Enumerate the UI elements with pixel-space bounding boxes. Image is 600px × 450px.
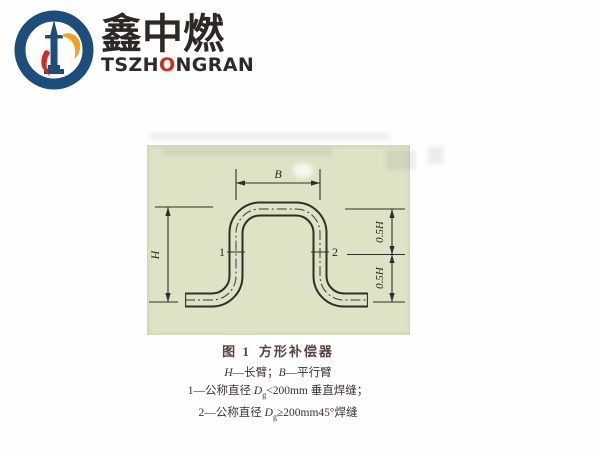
dim-label-b: B bbox=[274, 167, 282, 181]
company-name-cn: 鑫中燃 bbox=[101, 14, 254, 55]
compensator-diagram: 1 2 B H bbox=[147, 145, 410, 335]
company-name-en-post: NGRAN bbox=[176, 54, 255, 76]
note1-symbol-d: D bbox=[254, 385, 262, 397]
note1-desc: <200mm 垂直焊缝； bbox=[266, 385, 368, 397]
caption-note1-line: 1—公称直径 Dg<200mm 垂直焊缝； bbox=[95, 382, 461, 404]
scan-artifact bbox=[428, 147, 443, 164]
caption-arms-line: H—长臂；B—平行臂 bbox=[95, 364, 461, 382]
figure-scan-area: 1 2 B H bbox=[147, 145, 410, 335]
scan-artifact bbox=[150, 133, 390, 140]
company-name-en: TSZHONGRAN bbox=[101, 56, 254, 75]
caption-note2-line: 2—公称直径 Dg≥200mm45°焊缝 bbox=[95, 404, 461, 426]
figure-caption: 图 1方形补偿器 H—长臂；B—平行臂 1—公称直径 Dg<200mm 垂直焊缝… bbox=[95, 341, 461, 427]
dim-label-h: H bbox=[148, 249, 162, 260]
tower-base-icon bbox=[48, 65, 60, 69]
company-name-en-pre: TSZH bbox=[101, 54, 159, 76]
dimension-half-h: 0.5H 0.5H bbox=[345, 209, 405, 302]
arm-h-desc: —长臂； bbox=[233, 367, 279, 379]
symbol-h: H bbox=[224, 367, 232, 379]
dimension-b: B bbox=[236, 167, 320, 200]
figure-title-line: 图 1方形补偿器 bbox=[95, 341, 461, 360]
figure-title: 方形补偿器 bbox=[259, 344, 334, 359]
pipe-centerline bbox=[185, 209, 368, 300]
figure-number: 图 1 bbox=[222, 344, 251, 359]
note2-desc: ≥200mm45°焊缝 bbox=[277, 407, 358, 419]
pipe-body bbox=[185, 209, 368, 308]
company-name-en-o: O bbox=[159, 54, 176, 76]
note1-prefix: 1—公称直径 bbox=[188, 385, 254, 397]
dim-label-half-h-lower: 0.5H bbox=[374, 266, 386, 289]
company-logo: 鑫中燃 TSZHONGRAN bbox=[14, 10, 254, 90]
arm-b-desc: —平行臂 bbox=[286, 367, 332, 379]
weld-label-2: 2 bbox=[332, 245, 338, 259]
note2-symbol-d: D bbox=[265, 407, 273, 419]
dimension-h: H bbox=[148, 207, 213, 302]
tower-crossbar-icon bbox=[45, 35, 63, 39]
dim-label-half-h-upper: 0.5H bbox=[374, 220, 386, 243]
note2-prefix: 2—公称直径 bbox=[199, 407, 265, 419]
logo-text-block: 鑫中燃 TSZHONGRAN bbox=[101, 14, 254, 75]
weld-label-1: 1 bbox=[219, 245, 225, 259]
symbol-b: B bbox=[279, 367, 286, 379]
logo-emblem-icon bbox=[14, 10, 94, 90]
